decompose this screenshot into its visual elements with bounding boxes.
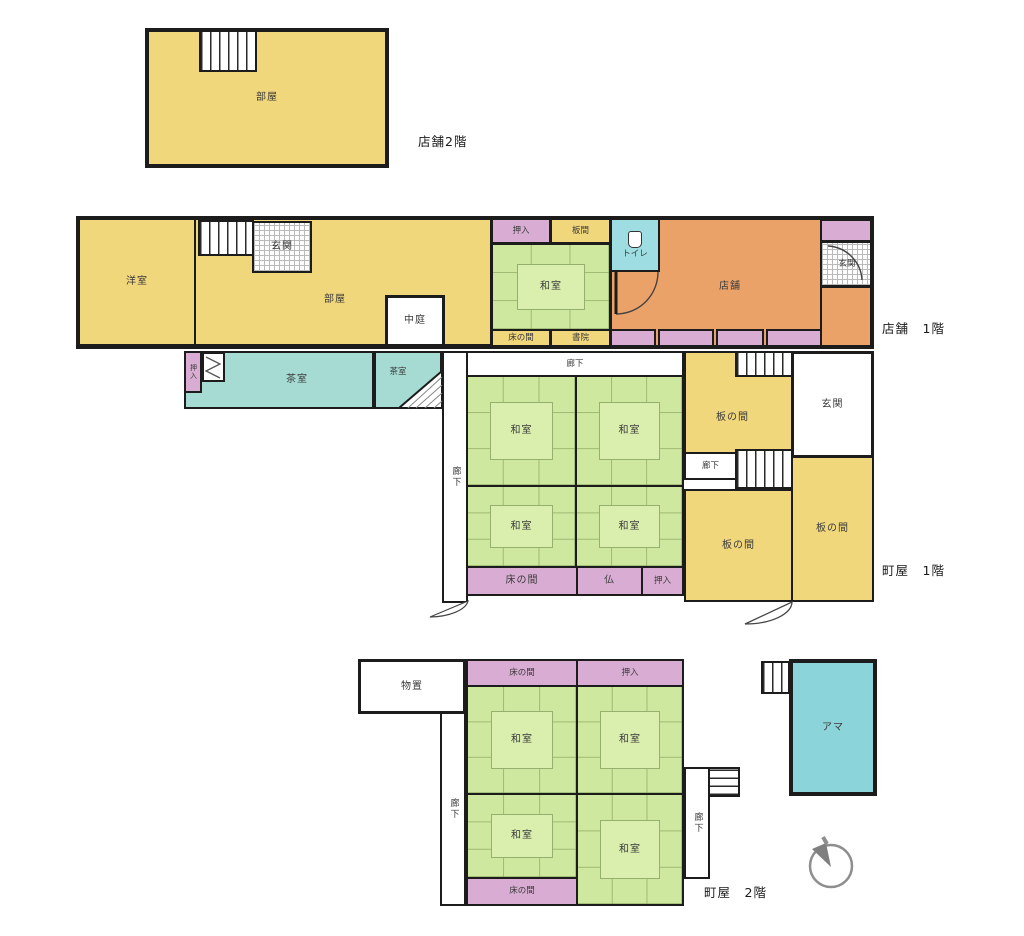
room-butsu: 仏	[576, 566, 643, 596]
room-label: 板の間	[716, 413, 749, 423]
room-roka-left-2f: 廊下	[440, 712, 466, 906]
closet-strip	[716, 329, 764, 348]
closet-strip	[610, 329, 656, 348]
floor-caption-machiya2f: 町屋 2階	[704, 882, 767, 901]
door-swing-icon	[744, 601, 794, 625]
stairs-icon	[198, 220, 254, 256]
room-label: 板の間	[722, 541, 755, 551]
room-label: 廊下	[693, 812, 702, 834]
room-oshiire-annex: 押入	[184, 351, 202, 393]
room-shoin: 書院	[550, 329, 611, 348]
room-tokonoma-1f: 床の間	[466, 566, 578, 596]
room-washitsu-bl-1f: 和室	[466, 485, 577, 568]
stairs-icon	[735, 351, 793, 377]
room-oshiire-top-2f: 押入	[576, 659, 684, 687]
stairs-icon	[199, 30, 257, 72]
room-washitsu-shop1f: 和室	[491, 243, 611, 331]
room-label: 和室	[511, 735, 533, 745]
room-label: アマ	[822, 723, 844, 733]
room-label: 部屋	[324, 295, 346, 305]
door-swing-icon	[614, 270, 662, 316]
compass-north-icon	[800, 834, 862, 892]
room-label: 店舗	[719, 282, 741, 292]
room-roka-top-1f: 廊下	[466, 351, 684, 377]
stairs-icon	[708, 767, 740, 797]
floor-caption-shop1f: 店舗 1階	[882, 318, 945, 337]
room-genkan-shop1f: 玄関	[252, 221, 312, 273]
room-label: 和室	[619, 735, 641, 745]
door-swing-icon	[824, 244, 864, 282]
room-label: 茶室	[286, 375, 308, 385]
room-yoshitsu: 洋室	[78, 218, 196, 346]
room-nakaniwa: 中庭	[385, 295, 445, 347]
room-ama: アマ	[789, 659, 877, 796]
closet-strip	[766, 329, 822, 348]
stairs-icon	[735, 449, 793, 489]
room-roka-right-2f: 廊下	[684, 767, 710, 879]
room-itanoma-bottom: 板の間	[684, 489, 793, 602]
room-washitsu-tr-1f: 和室	[575, 375, 684, 487]
room-tokonoma-bottom-2f: 床の間	[466, 877, 578, 906]
angled-wall-hatch	[398, 351, 442, 409]
room-genkan-1f: 玄関	[791, 351, 874, 458]
room-label: 廊下	[449, 798, 458, 820]
room-washitsu-br-2f: 和室	[576, 793, 684, 906]
room-tokonoma-shop1f: 床の間	[491, 329, 551, 348]
room-itama: 板間	[550, 218, 611, 244]
room-label: 和室	[511, 522, 533, 532]
room-itanoma-right: 板の間	[791, 456, 874, 602]
room-label: 玄関	[271, 242, 293, 252]
room-label: トイレ	[622, 250, 648, 259]
room-washitsu-tl-2f: 和室	[466, 685, 578, 795]
room-label: 部屋	[256, 93, 278, 103]
room-label: 洋室	[126, 277, 148, 287]
stairs-icon	[761, 661, 790, 694]
room-roka-left-1f: 廊下	[442, 351, 468, 603]
room-label: 書院	[572, 334, 589, 343]
room-label: 中庭	[404, 316, 426, 326]
room-label: 和室	[511, 831, 533, 841]
room-washitsu-tr-2f: 和室	[576, 685, 684, 795]
room-label: 板の間	[816, 524, 849, 534]
floor-caption-machiya1f: 町屋 1階	[882, 560, 945, 579]
room-washitsu-tl-1f: 和室	[466, 375, 577, 487]
room-label: 玄関	[822, 400, 844, 410]
folding-door-icon	[203, 353, 225, 383]
room-label: 廊下	[702, 462, 719, 471]
room-label: 廊下	[451, 466, 460, 488]
room-label: 物置	[401, 682, 423, 692]
room-heya-shop2f: 部屋	[145, 28, 389, 168]
room-label: 和室	[619, 845, 641, 855]
room-label: 床の間	[509, 669, 535, 678]
room-label: 押入	[512, 227, 529, 236]
floor-plan-canvas: 部屋 店舗2階 洋室 部屋 玄関 中庭 押入 板間 和室 床の間 書院 店舗 ト…	[0, 0, 1024, 936]
room-oshiire-shop1f: 押入	[491, 218, 551, 244]
room-label: 床の間	[509, 887, 535, 896]
toilet-icon	[628, 231, 642, 248]
room-label: 板間	[572, 227, 589, 236]
room-label: 押入	[654, 577, 671, 586]
room-label: 和室	[511, 426, 533, 436]
floor-caption-shop2f: 店舗2階	[418, 131, 467, 150]
room-label: 床の間	[506, 576, 539, 586]
room-label: 床の間	[508, 334, 534, 343]
room-tokonoma-top-2f: 床の間	[466, 659, 578, 687]
door-swing-icon	[428, 600, 460, 620]
room-label: 押入	[621, 669, 638, 678]
room-label: 仏	[604, 576, 615, 586]
room-tenpo-rear	[820, 286, 874, 347]
room-label: 和室	[540, 282, 562, 292]
closet-strip	[820, 219, 874, 242]
room-washitsu-br-1f: 和室	[575, 485, 684, 568]
room-toire: トイレ	[610, 218, 660, 272]
room-label: 和室	[619, 426, 641, 436]
closet-strip	[658, 329, 714, 348]
room-roka-small-1f: 廊下	[684, 452, 737, 480]
room-washitsu-bl-2f: 和室	[466, 793, 578, 879]
room-oshiire-1f: 押入	[641, 566, 684, 596]
room-label: 廊下	[566, 360, 583, 369]
room-label: 和室	[619, 522, 641, 532]
room-monooki: 物置	[358, 659, 466, 714]
room-label: 押入	[190, 364, 197, 380]
